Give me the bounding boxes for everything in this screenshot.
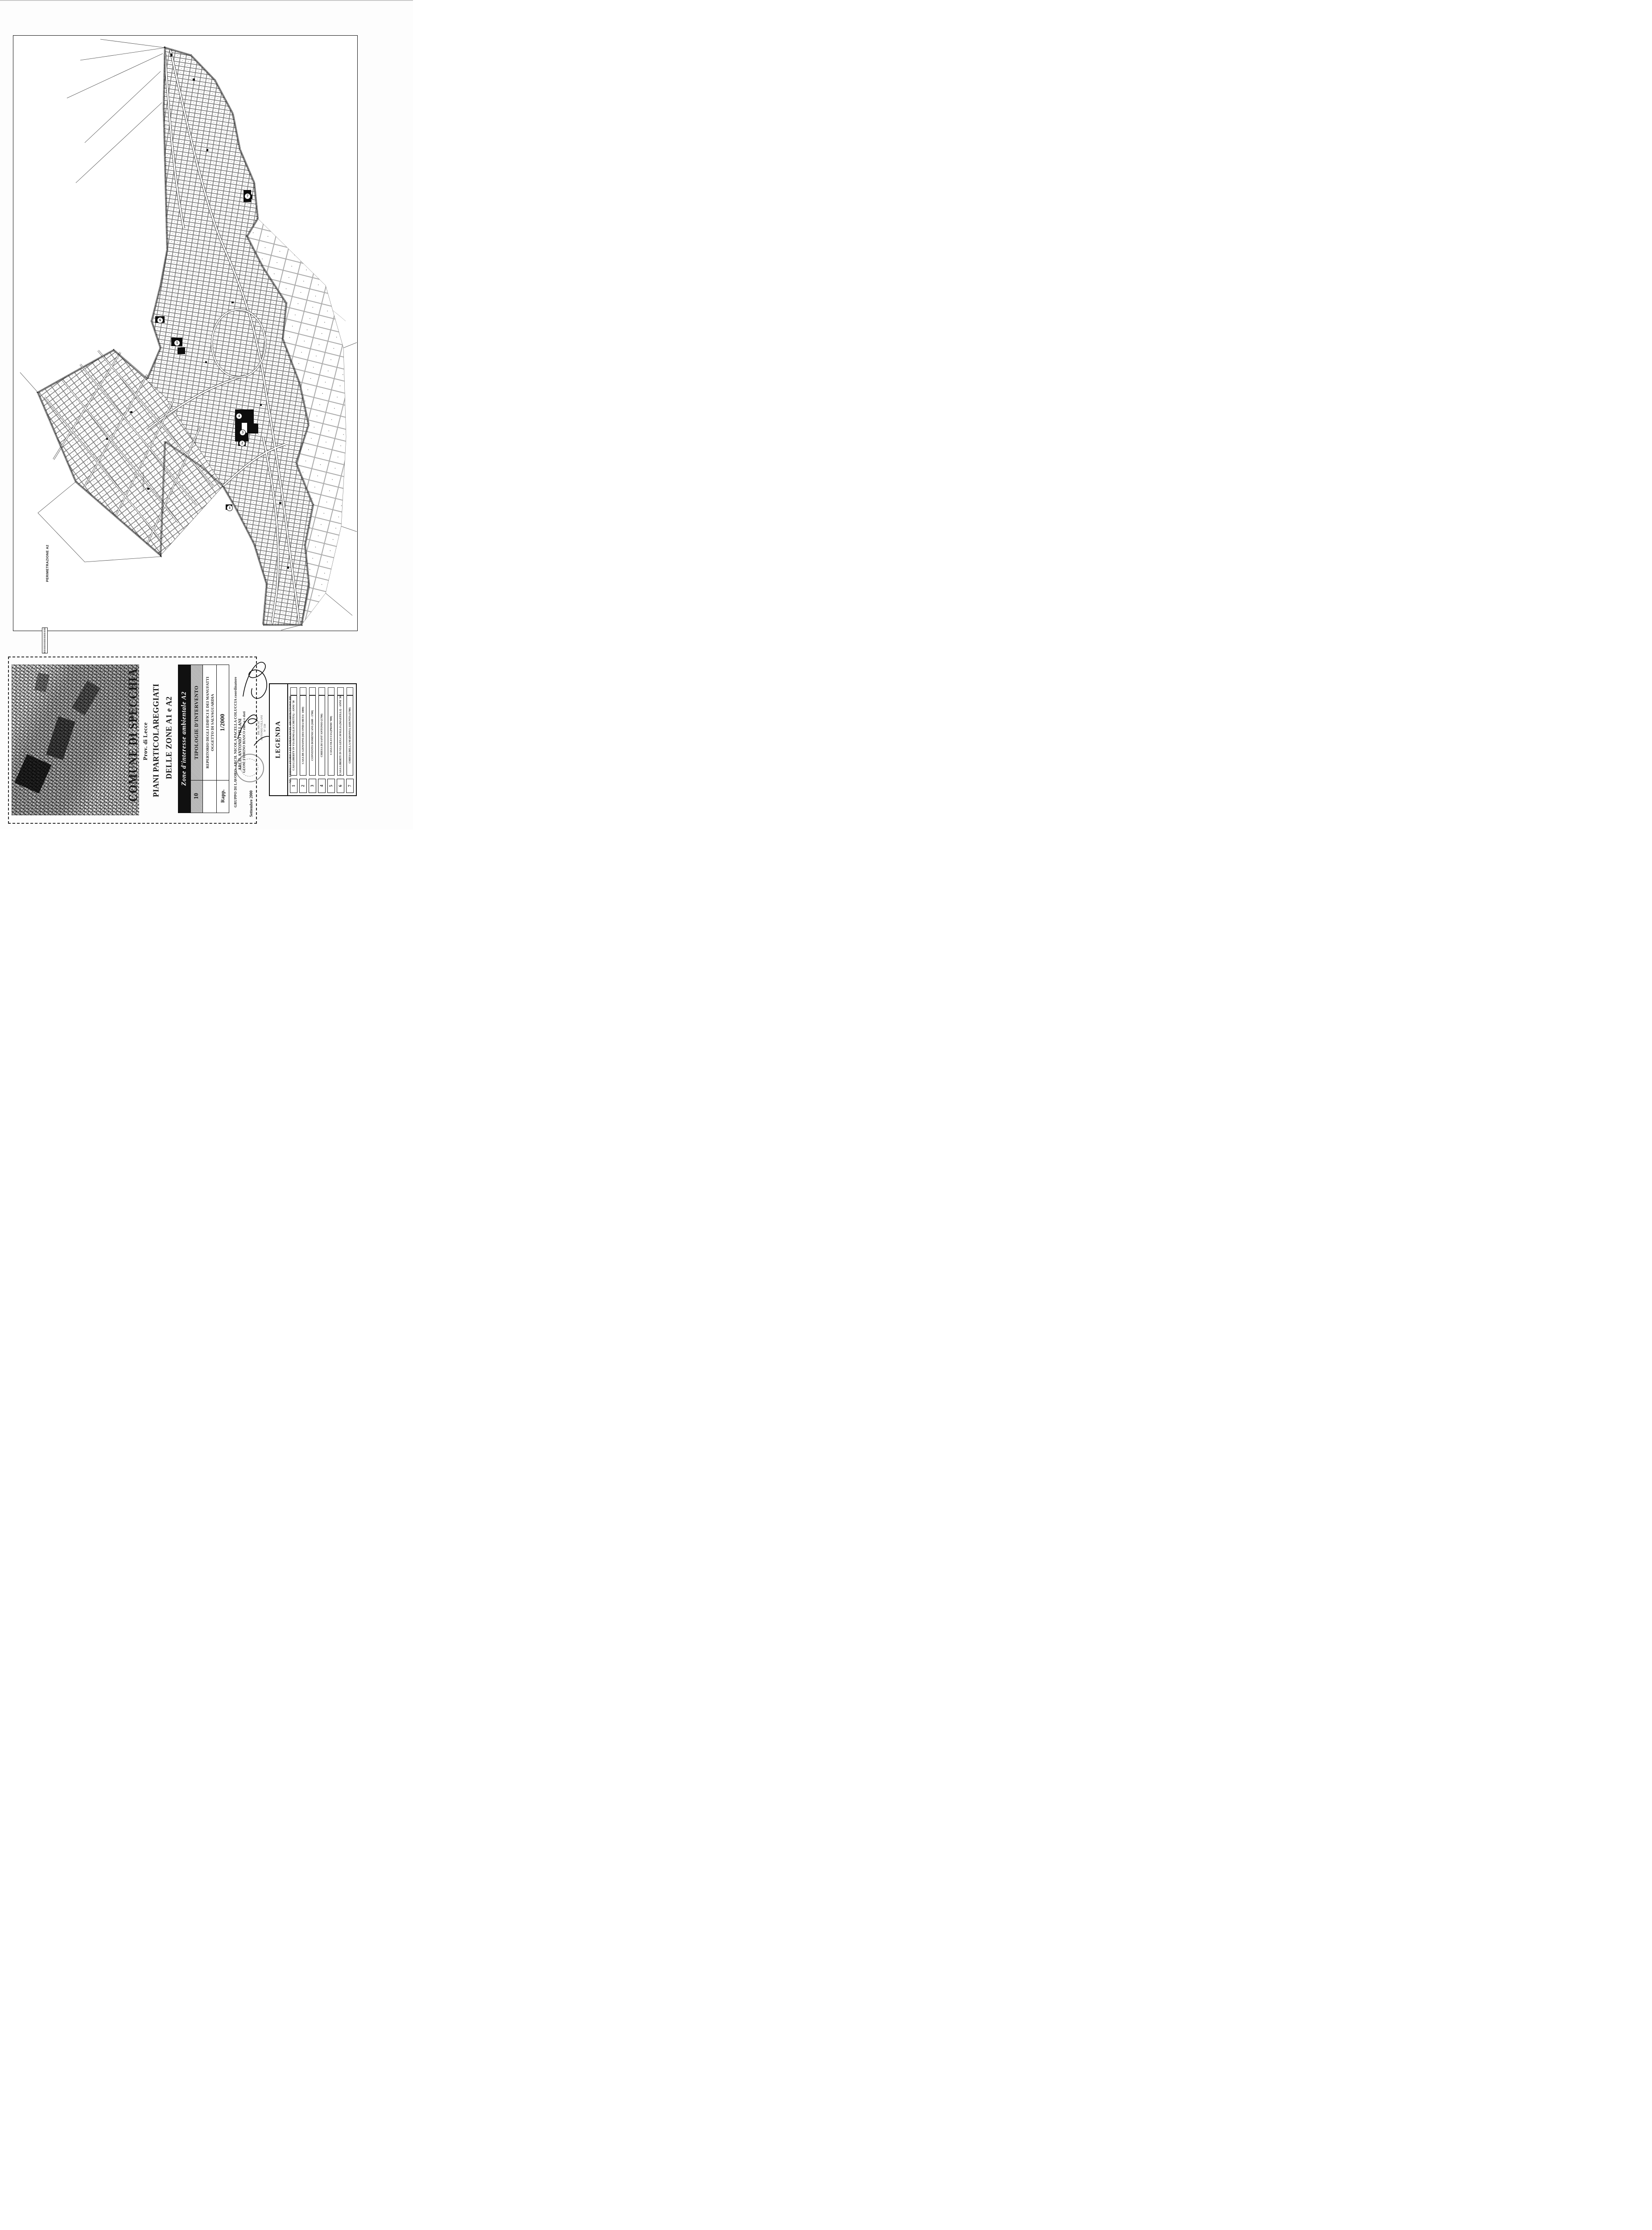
legend-item-5: CASA COLUCCIA (PRIMI '900) 5 <box>326 684 335 795</box>
legend-item-number: 7 <box>348 785 352 787</box>
sheet-number: 10 <box>193 793 200 799</box>
legend-item-7: CHIESA DELLA MADONNA ASSUNTA (1700) 7 <box>345 684 354 795</box>
map-sheet: 1234567 PERIMETRAZIONE A2 Scuola Element… <box>13 35 358 631</box>
legend-divider <box>287 684 288 795</box>
scanned-plan-sheet: 1234567 PERIMETRAZIONE A2 Scuola Element… <box>0 0 413 830</box>
province-subtitle: Prov. di Lecce <box>142 722 149 760</box>
legend-item-label: CONVENTO DOMENICANI (1600 - 1700) <box>311 710 314 761</box>
legend-item-label: CASA LIBERTY IN VIA GEN.CAVIGLIA (MAZZIL… <box>339 696 342 775</box>
legend-item-label: CASA LIBERTY IN VIA ROMA (LICCHETTA) - A… <box>293 700 295 770</box>
map-marker: 4 <box>236 413 242 419</box>
legend-item-label: CHIESA DELLA MADONNA ASSUNTA (1700) <box>349 707 351 764</box>
legend-title: LEGENDA <box>275 721 282 759</box>
title-block-table: Zone d'interesse ambientale A2 TIPOLOGIE… <box>178 665 229 813</box>
legend-item-label: CHIESA DI SANT'ANTONIO (1700) <box>321 714 323 757</box>
aerial-photo <box>12 665 139 815</box>
perimeter-key-label: PERIMETRAZIONE A2 <box>45 545 50 582</box>
sheet-type-text: TIPOLOGIE D'INTERVENTO <box>194 686 199 760</box>
map-marker: 3 <box>240 429 246 436</box>
stamp-line1: DR. ARCH. <box>257 721 260 735</box>
legend-item-3: CONVENTO DOMENICANI (1600 - 1700) 3 <box>308 684 317 795</box>
stamp-line2: ANTONIO VILLANI <box>260 715 264 740</box>
scanner-edge-artifact <box>0 0 413 1</box>
legend-item-number: 2 <box>301 785 306 787</box>
legend-box: LEGENDA A2 - EDIFICI STORICI ED EMERGENZ… <box>269 683 357 796</box>
scale-cell: 1/2000 Rapp. <box>216 665 229 813</box>
legend-item-4: CHIESA DI SANT'ANTONIO (1700) 4 <box>317 684 326 795</box>
subject-cell: REPERTORIO DEGLI EDIFICI E DEI MANUFATTI… <box>202 665 216 813</box>
round-stamp <box>235 754 264 782</box>
stamp-line3: N° 550 <box>264 724 267 732</box>
plan-title-line2: DELLE ZONE A1 e A2 <box>165 696 174 779</box>
map-marker: 2 <box>239 440 245 446</box>
map-marker-layer: 1234567 <box>13 36 357 631</box>
zone-banner-cell: Zone d'interesse ambientale A2 <box>178 665 190 813</box>
scale-value: 1/2000 <box>219 714 227 731</box>
legend-item-label: CASA DE GIOVANNI (SECONDA META' 1800) <box>302 707 305 764</box>
municipality-title: COMUNE DI SPECCHIA <box>126 668 140 801</box>
legend-item-2: CASA DE GIOVANNI (SECONDA META' 1800) 2 <box>298 684 307 795</box>
zone-banner-text: Zone d'interesse ambientale A2 <box>181 691 188 786</box>
perimeter-key-swatch <box>42 628 48 653</box>
plan-title-line1: PIANI PARTICOLAREGGIATI <box>152 684 161 797</box>
legend-item-6: CASA LIBERTY IN VIA GEN.CAVIGLIA (MAZZIL… <box>336 684 345 795</box>
legend-item-number: 4 <box>320 785 324 787</box>
legend-item-number: 1 <box>292 785 296 787</box>
map-marker: 1 <box>227 505 233 511</box>
legend-item-number: 3 <box>310 785 315 787</box>
subject-line2: OGGETTO DI SALVAGUARDIA <box>210 694 215 751</box>
school-label: Scuola Elementare <box>142 473 145 491</box>
legend-item-1: CASA LIBERTY IN VIA ROMA (LICCHETTA) - A… <box>289 684 298 795</box>
subject-line1: REPERTORIO DEGLI EDIFICI E DEI MANUFATTI <box>205 677 210 768</box>
map-marker: 5 <box>174 340 180 346</box>
map-marker: 7 <box>244 193 251 199</box>
sheet-type-cell: TIPOLOGIE D'INTERVENTO 10 <box>190 665 202 813</box>
date-label: Settembre 2000 <box>249 790 253 817</box>
legend-item-number: 5 <box>329 785 334 787</box>
legend-item-number: 6 <box>339 785 343 787</box>
map-marker: 6 <box>157 317 163 323</box>
legend-item-label: CASA COLUCCIA (PRIMI '900) <box>330 716 333 755</box>
scale-label: Rapp. <box>220 789 226 803</box>
